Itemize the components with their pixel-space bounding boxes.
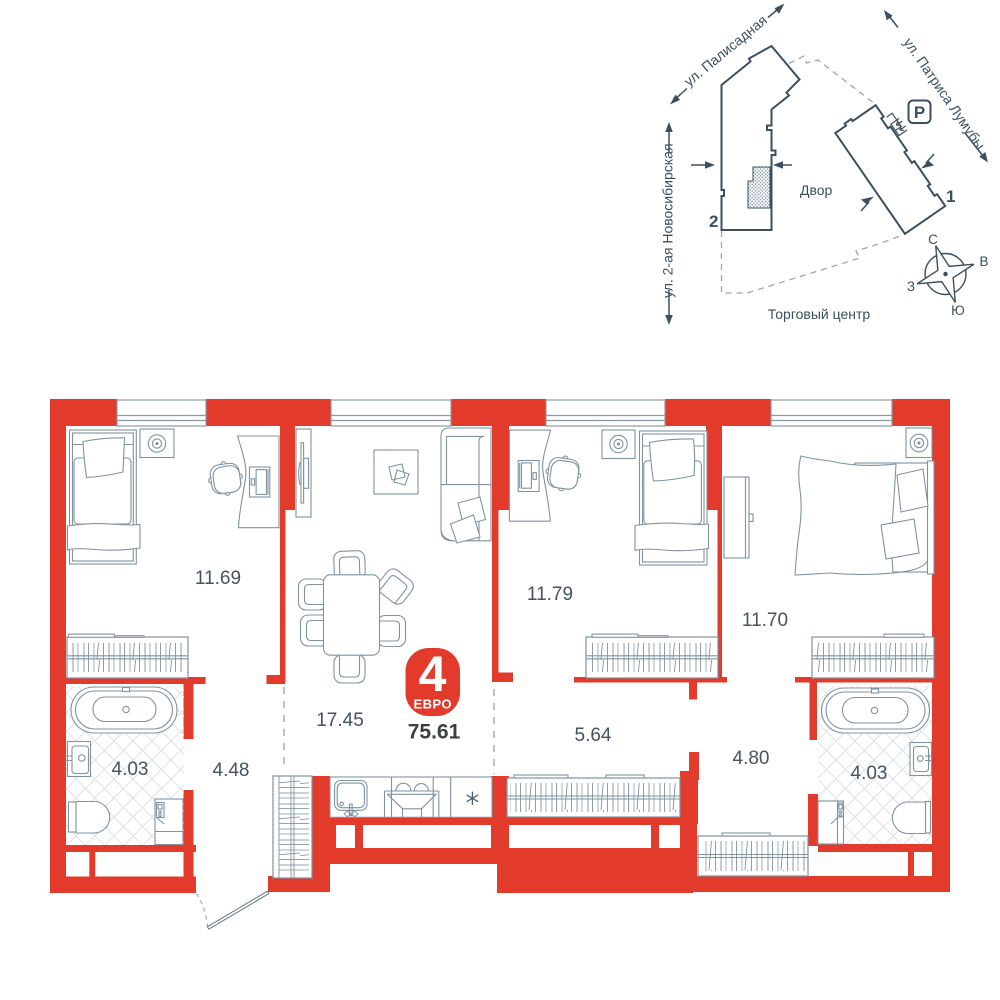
svg-text:ул. Патриса Лумубы: ул. Патриса Лумубы <box>901 35 989 153</box>
svg-text:75.61: 75.61 <box>408 721 461 744</box>
svg-text:4.48: 4.48 <box>213 760 250 781</box>
svg-text:4.03: 4.03 <box>112 759 149 780</box>
svg-text:4: 4 <box>419 646 447 702</box>
svg-text:4.03: 4.03 <box>851 763 888 784</box>
svg-text:2: 2 <box>709 212 718 231</box>
svg-text:Двор: Двор <box>800 182 833 198</box>
svg-text:ул. 2-ая Новосибирская: ул. 2-ая Новосибирская <box>660 143 676 298</box>
svg-text:11.70: 11.70 <box>742 610 788 631</box>
svg-text:5.64: 5.64 <box>575 725 612 746</box>
svg-text:P: P <box>914 103 925 122</box>
svg-text:ЕВРО: ЕВРО <box>413 697 452 712</box>
svg-text:Ю: Ю <box>951 303 965 318</box>
svg-text:4.80: 4.80 <box>733 748 770 769</box>
svg-text:11.79: 11.79 <box>527 584 573 605</box>
svg-text:11.69: 11.69 <box>195 568 241 589</box>
svg-text:З: З <box>907 279 915 294</box>
svg-text:В: В <box>979 254 988 269</box>
svg-text:17.45: 17.45 <box>316 710 364 731</box>
svg-text:1: 1 <box>946 187 955 206</box>
svg-text:Торговый центр: Торговый центр <box>768 306 871 322</box>
svg-text:С: С <box>928 232 938 247</box>
